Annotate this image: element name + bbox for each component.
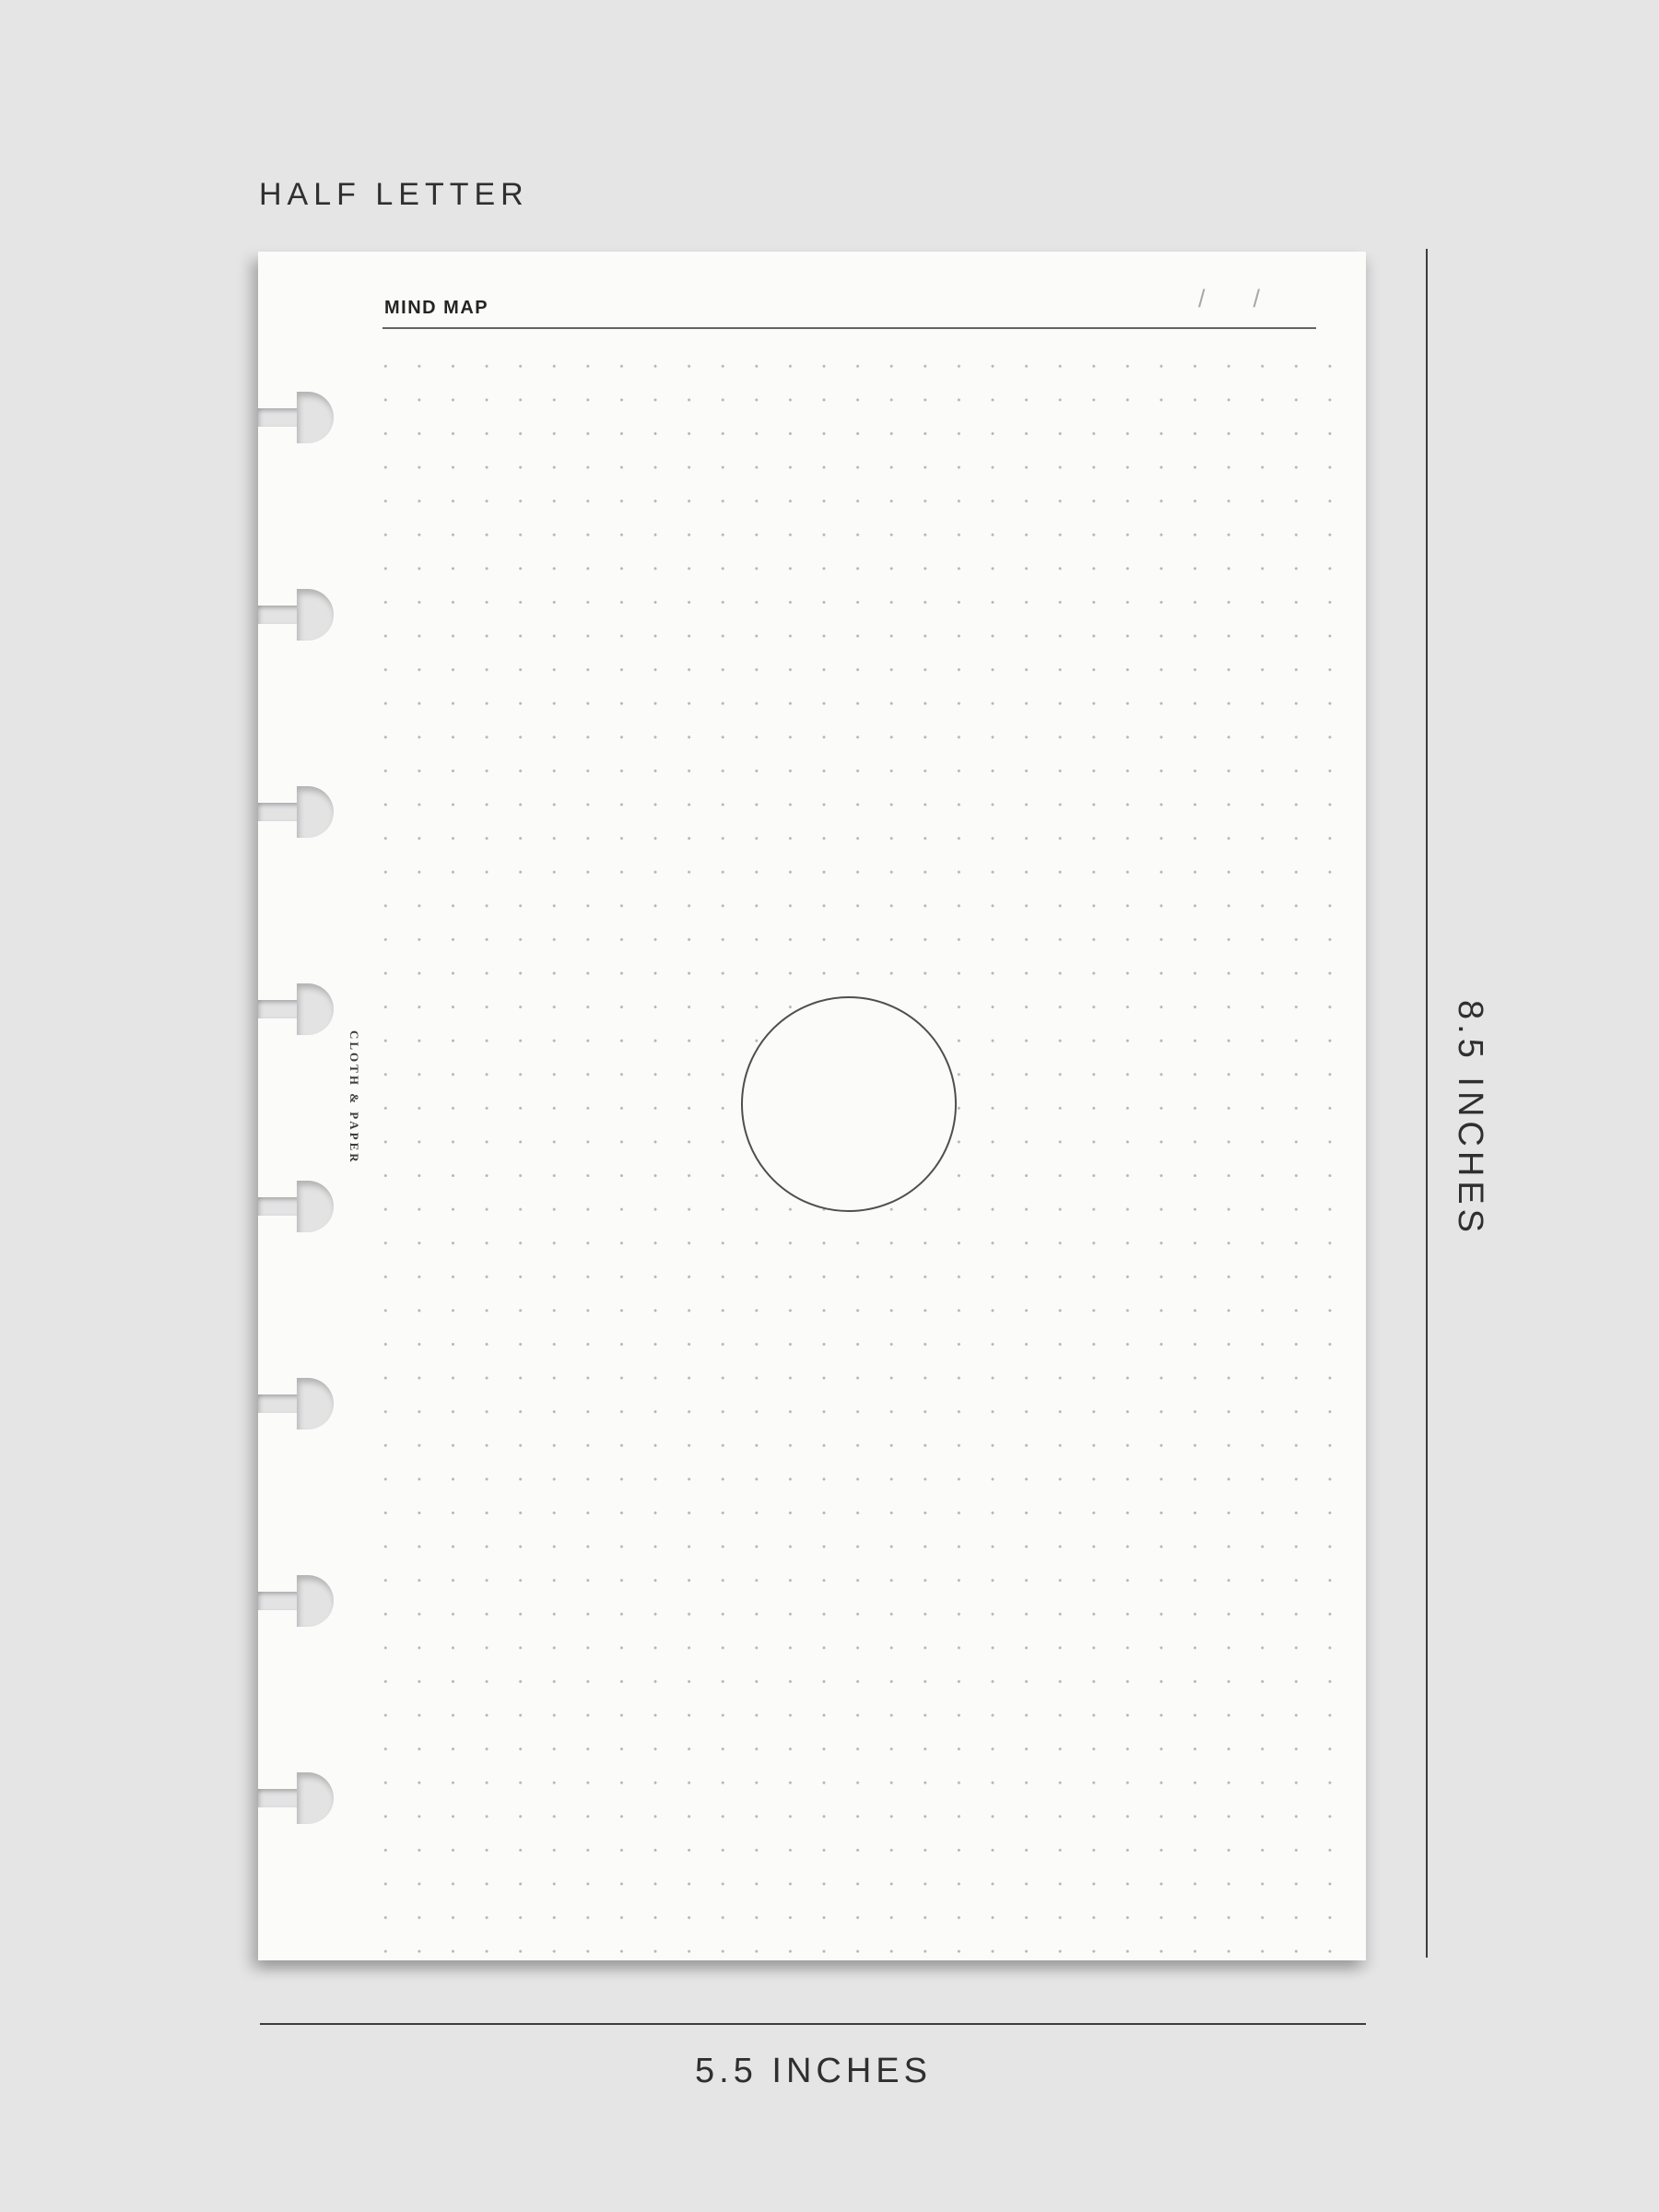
header-rule <box>382 327 1316 329</box>
punch-slot <box>258 1394 300 1413</box>
disc-punch-hole <box>258 982 335 1036</box>
punch-bulb <box>297 1575 334 1627</box>
brand-logo-text: CLOTH & PAPER <box>347 1030 361 1165</box>
punch-slot <box>258 1197 300 1216</box>
punch-bulb <box>297 1378 334 1430</box>
size-label: HALF LETTER <box>259 177 529 213</box>
punch-slot <box>258 1000 300 1018</box>
width-measurement-label: 5.5 INCHES <box>695 2052 932 2091</box>
punch-bulb <box>297 983 334 1035</box>
product-mockup: HALF LETTER MIND MAP / / CLOTH & PAPER 8… <box>0 0 1659 2212</box>
punch-bulb <box>297 392 334 443</box>
date-field: / / <box>1198 285 1260 313</box>
page-title: MIND MAP <box>384 298 488 319</box>
disc-punch-hole <box>258 391 335 444</box>
punch-bulb <box>297 786 334 838</box>
mind-map-center-circle <box>741 996 957 1212</box>
date-slash-icon: / <box>1253 285 1261 313</box>
planner-page: MIND MAP / / CLOTH & PAPER <box>258 252 1366 1960</box>
disc-punch-hole <box>258 785 335 839</box>
height-measure-line <box>1426 249 1428 1958</box>
punch-bulb <box>297 1181 334 1232</box>
disc-punch-hole <box>258 588 335 641</box>
punch-slot <box>258 408 300 427</box>
disc-punch-hole <box>258 1180 335 1233</box>
disc-punch-hole <box>258 1574 335 1628</box>
disc-punch-hole <box>258 1377 335 1430</box>
punch-bulb <box>297 589 334 641</box>
width-measure-line <box>260 2023 1366 2025</box>
punch-slot <box>258 606 300 624</box>
punch-slot <box>258 1789 300 1807</box>
punch-bulb <box>297 1772 334 1824</box>
date-slash-icon: / <box>1198 285 1206 313</box>
height-measurement-label: 8.5 INCHES <box>1450 1000 1489 1237</box>
punch-slot <box>258 803 300 821</box>
disc-punch-hole <box>258 1771 335 1825</box>
punch-slot <box>258 1592 300 1610</box>
